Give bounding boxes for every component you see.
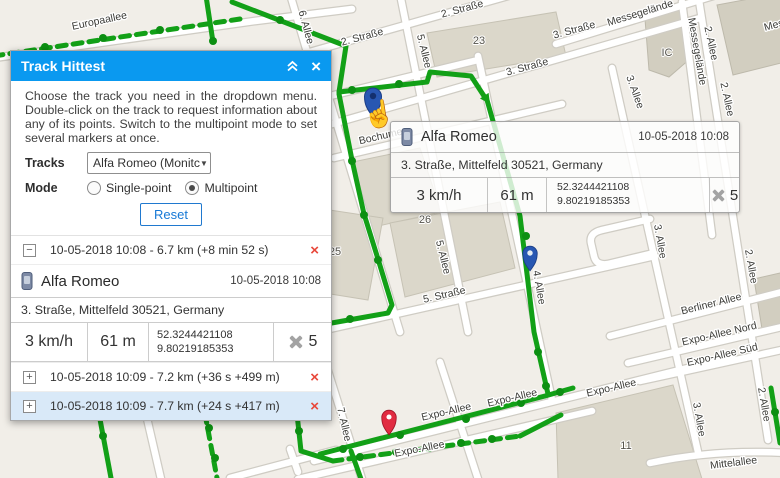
satellites-icon (711, 188, 726, 203)
map-label: 26 (419, 214, 431, 226)
vehicle-icon (401, 128, 413, 146)
tooltip-coordinates: 52.3244421108 9.80219185353 (547, 178, 710, 212)
map-label: 11 (620, 440, 631, 452)
tooltip-longitude: 9.80219185353 (557, 195, 630, 209)
track-hittest-panel: Track Hittest × Choose the track you nee… (10, 50, 332, 421)
detail-satellite-count: 5 (309, 333, 318, 351)
list-item[interactable]: + 10-05-2018 10:09 - 7.2 km (+36 s +499 … (11, 362, 331, 391)
collapse-icon[interactable] (286, 60, 299, 72)
delete-point-icon[interactable]: × (310, 370, 319, 385)
detail-latitude: 52.3244421108 (157, 328, 233, 342)
detail-unit-name: Alfa Romeo (41, 273, 230, 290)
track-select[interactable]: Alfa Romeo (Monitc ▼ (87, 152, 211, 174)
vehicle-icon (21, 272, 33, 290)
point-summary: 10-05-2018 10:08 - 6.7 km (+8 min 52 s) (50, 243, 302, 257)
delete-point-icon[interactable]: × (310, 399, 319, 414)
tooltip-satellites: 5 (710, 178, 739, 212)
map-label: 23 (473, 35, 485, 47)
mode-multipoint[interactable]: Multipoint (185, 181, 257, 195)
expand-toggle-icon[interactable]: + (23, 400, 36, 413)
detail-longitude: 9.80219185353 (157, 342, 233, 356)
delete-point-icon[interactable]: × (310, 243, 319, 258)
panel-header: Track Hittest × (11, 51, 331, 81)
detail-coordinates: 52.3244421108 9.80219185353 (149, 323, 274, 361)
tooltip-address: 3. Straße, Mittelfeld 30521, Germany (391, 152, 739, 178)
radio-single-point[interactable] (87, 181, 101, 195)
chevron-down-icon: ▼ (200, 159, 208, 168)
tooltip-unit-name: Alfa Romeo (421, 129, 638, 145)
panel-title: Track Hittest (21, 58, 274, 74)
collapse-toggle-icon[interactable]: − (23, 244, 36, 257)
track-point-list: − 10-05-2018 10:08 - 6.7 km (+8 min 52 s… (11, 235, 331, 420)
panel-description: Choose the track you need in the dropdow… (11, 81, 331, 145)
multipoint-label: Multipoint (204, 181, 257, 195)
tooltip-latitude: 52.3244421108 (557, 181, 629, 195)
mode-label: Mode (25, 181, 87, 195)
list-item-selected[interactable]: + 10-05-2018 10:09 - 7.7 km (+24 s +417 … (11, 391, 331, 420)
tooltip-timestamp: 10-05-2018 10:08 (638, 131, 729, 143)
detail-altitude: 61 m (88, 323, 149, 361)
point-detail-card: Alfa Romeo 10-05-2018 10:08 3. Straße, M… (11, 264, 331, 362)
tooltip-speed: 3 km/h (391, 178, 488, 212)
point-summary: 10-05-2018 10:09 - 7.2 km (+36 s +499 m) (50, 370, 302, 384)
list-item[interactable]: − 10-05-2018 10:08 - 6.7 km (+8 min 52 s… (11, 236, 331, 264)
map-label: IC (662, 47, 673, 59)
detail-speed: 3 km/h (11, 323, 88, 361)
mode-single-point[interactable]: Single-point (87, 181, 171, 195)
radio-multipoint[interactable] (185, 181, 199, 195)
single-point-label: Single-point (106, 181, 171, 195)
map-point-tooltip: Alfa Romeo 10-05-2018 10:08 3. Straße, M… (390, 121, 740, 213)
tooltip-satellite-count: 5 (730, 187, 738, 204)
track-select-value: Alfa Romeo (Monitc (93, 156, 200, 170)
expand-toggle-icon[interactable]: + (23, 371, 36, 384)
close-icon[interactable]: × (311, 58, 321, 75)
app-window: Europaallee6. Allee2. Straße2. Straße233… (0, 0, 780, 478)
point-summary: 10-05-2018 10:09 - 7.7 km (+24 s +417 m) (50, 399, 302, 413)
tooltip-altitude: 61 m (488, 178, 547, 212)
satellites-icon (288, 334, 304, 350)
reset-button[interactable]: Reset (140, 203, 202, 226)
detail-timestamp: 10-05-2018 10:08 (230, 275, 321, 287)
tracks-label: Tracks (25, 156, 87, 170)
detail-address: 3. Straße, Mittelfeld 30521, Germany (11, 297, 331, 323)
detail-satellites: 5 (274, 323, 331, 361)
